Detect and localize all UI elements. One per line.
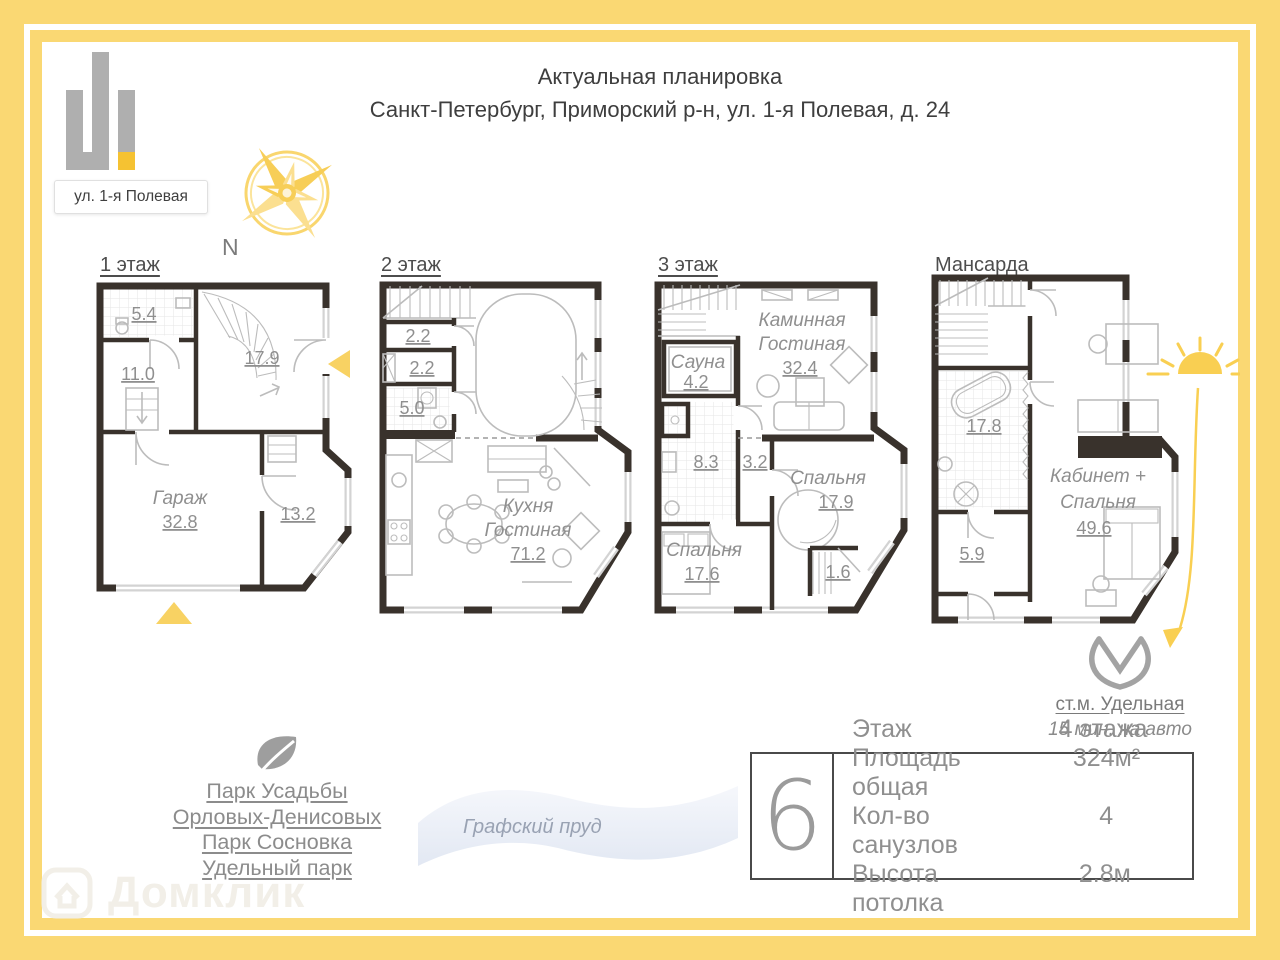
floor-title-3: 3 этаж — [658, 254, 718, 277]
room-name-label: Кухня — [503, 496, 554, 517]
sun-arrow-path — [1180, 388, 1198, 628]
floorplan-sheet: Актуальная планировка Санкт-Петербург, П… — [0, 0, 1280, 960]
summary-label: Этаж — [852, 715, 912, 744]
floorplan-floor3: Каминная Гостиная 32.4 Сауна 4.2 8.3 3.2… — [650, 280, 930, 630]
room-area-label: 2.2 — [409, 358, 434, 378]
room-name-label: Каминная — [759, 310, 846, 331]
big-number: 6 — [752, 754, 834, 878]
metro-logo-icon — [1084, 636, 1156, 690]
room-area-label: 11.0 — [121, 364, 155, 384]
summary-row: Высота потолка 2.8м — [852, 860, 1178, 918]
room-name-label: Гостиная — [485, 520, 572, 541]
summary-label: Кол-во санузлов — [852, 802, 1034, 860]
room-area-label: 5.9 — [959, 544, 984, 564]
room-area-label: 32.8 — [162, 512, 197, 532]
room-area-label: 71.2 — [510, 544, 545, 564]
room-area-label: 17.8 — [966, 416, 1001, 436]
park-name: Орловых-Денисовых — [112, 805, 442, 831]
domclick-house-icon — [40, 866, 94, 920]
summary-value: 2.8м — [1032, 860, 1178, 918]
leaf-icon — [252, 729, 302, 783]
metro-station-label: ст.м. Удельная — [1056, 694, 1185, 716]
floorplan-floor2: 2.2 2.2 5.0 Кухня Гостиная 71.2 — [376, 280, 648, 630]
room-area-label: 4.2 — [683, 372, 708, 392]
street-label: ул. 1-я Полевая — [54, 180, 208, 214]
summary-value: 4 — [1034, 802, 1178, 860]
summary-value: 324м² — [1035, 744, 1178, 802]
room-area-label: 13.2 — [280, 504, 315, 524]
room-area-label: 5.0 — [399, 398, 424, 418]
room-name-label: Гараж — [153, 488, 208, 509]
room-name-label: Гостиная — [759, 334, 846, 355]
park-name: Парк Усадьбы — [112, 779, 442, 805]
entrance-arrow-up — [156, 602, 192, 624]
floor-title-2: 2 этаж — [381, 254, 441, 277]
room-area-label: 5.4 — [131, 304, 156, 324]
room-area-label: 32.4 — [782, 358, 817, 378]
room-area-label: 8.3 — [693, 452, 718, 472]
north-indicator: N — [222, 234, 239, 261]
page-title: Актуальная планировка Санкт-Петербург, П… — [250, 60, 1070, 126]
summary-row: Площадь общая 324м² — [852, 744, 1178, 802]
floor-title-1: 1 этаж — [100, 254, 160, 277]
room-area-label: 17.6 — [684, 564, 719, 584]
summary-label: Площадь общая — [852, 744, 1035, 802]
park-name: Парк Сосновка — [112, 830, 442, 856]
room-area-label: 17.9 — [244, 348, 279, 368]
room-name-label: Спальня — [790, 468, 866, 489]
sun-direction-icon — [1090, 330, 1240, 670]
title-line-2: Санкт-Петербург, Приморский р-н, ул. 1-я… — [250, 93, 1070, 126]
room-name-label: Спальня — [666, 540, 742, 561]
room-name-label: Сауна — [671, 352, 725, 373]
domclick-brand: Домклик — [108, 868, 305, 918]
floorplan-floor1: 5.4 11.0 17.9 Гараж 32.8 13.2 — [92, 280, 354, 630]
summary-panel: 6 Этаж 4 этажа Площадь общая 324м² Кол-в… — [750, 752, 1194, 880]
pond-area: Графский пруд — [418, 768, 738, 883]
developer-logo-icon — [66, 52, 142, 172]
room-area-label: 17.9 — [818, 492, 853, 512]
room-area-label: 3.2 — [742, 452, 767, 472]
domclick-watermark: Домклик — [40, 866, 305, 920]
pond-name: Графский пруд — [463, 816, 683, 839]
room-area-label: 2.2 — [405, 326, 430, 346]
summary-value: 4 этажа — [1028, 715, 1178, 744]
summary-label: Высота потолка — [852, 860, 1032, 918]
summary-row: Этаж 4 этажа — [852, 715, 1178, 744]
room-area-label: 1.6 — [825, 562, 850, 582]
summary-rows: Этаж 4 этажа Площадь общая 324м² Кол-во … — [834, 754, 1192, 878]
compass-rose-icon — [232, 138, 342, 248]
entrance-arrow-left — [328, 350, 350, 378]
summary-row: Кол-во санузлов 4 — [852, 802, 1178, 860]
title-line-1: Актуальная планировка — [250, 60, 1070, 93]
